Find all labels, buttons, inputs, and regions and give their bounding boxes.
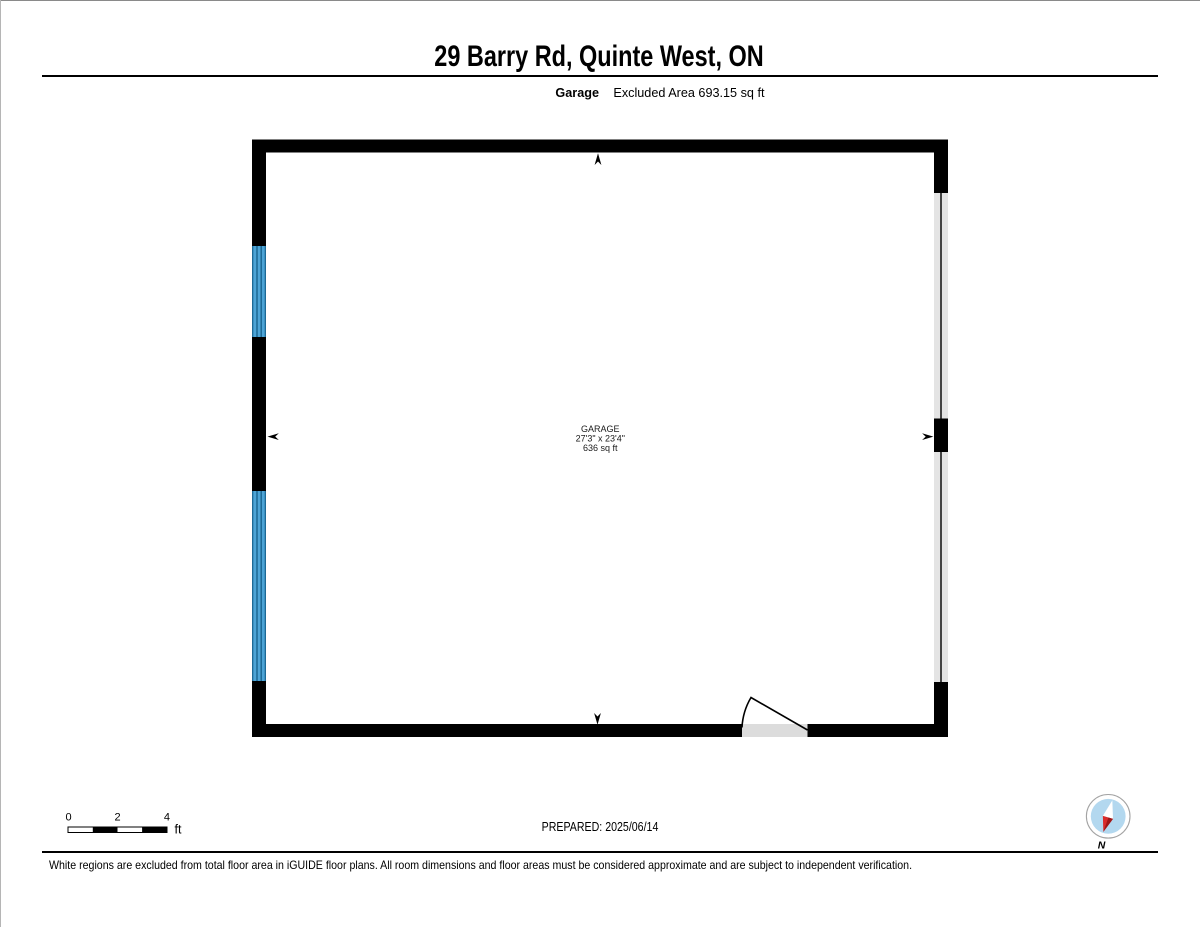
svg-text:Excluded Area 693.15 sq ft: Excluded Area 693.15 sq ft bbox=[613, 86, 765, 100]
svg-text:636 sq ft: 636 sq ft bbox=[583, 443, 618, 453]
svg-text:27'3" x 23'4": 27'3" x 23'4" bbox=[576, 433, 625, 443]
svg-text:0: 0 bbox=[65, 812, 71, 824]
svg-text:GARAGE: GARAGE bbox=[581, 424, 620, 434]
svg-text:N: N bbox=[1098, 839, 1106, 851]
svg-text:Garage: Garage bbox=[555, 86, 599, 100]
